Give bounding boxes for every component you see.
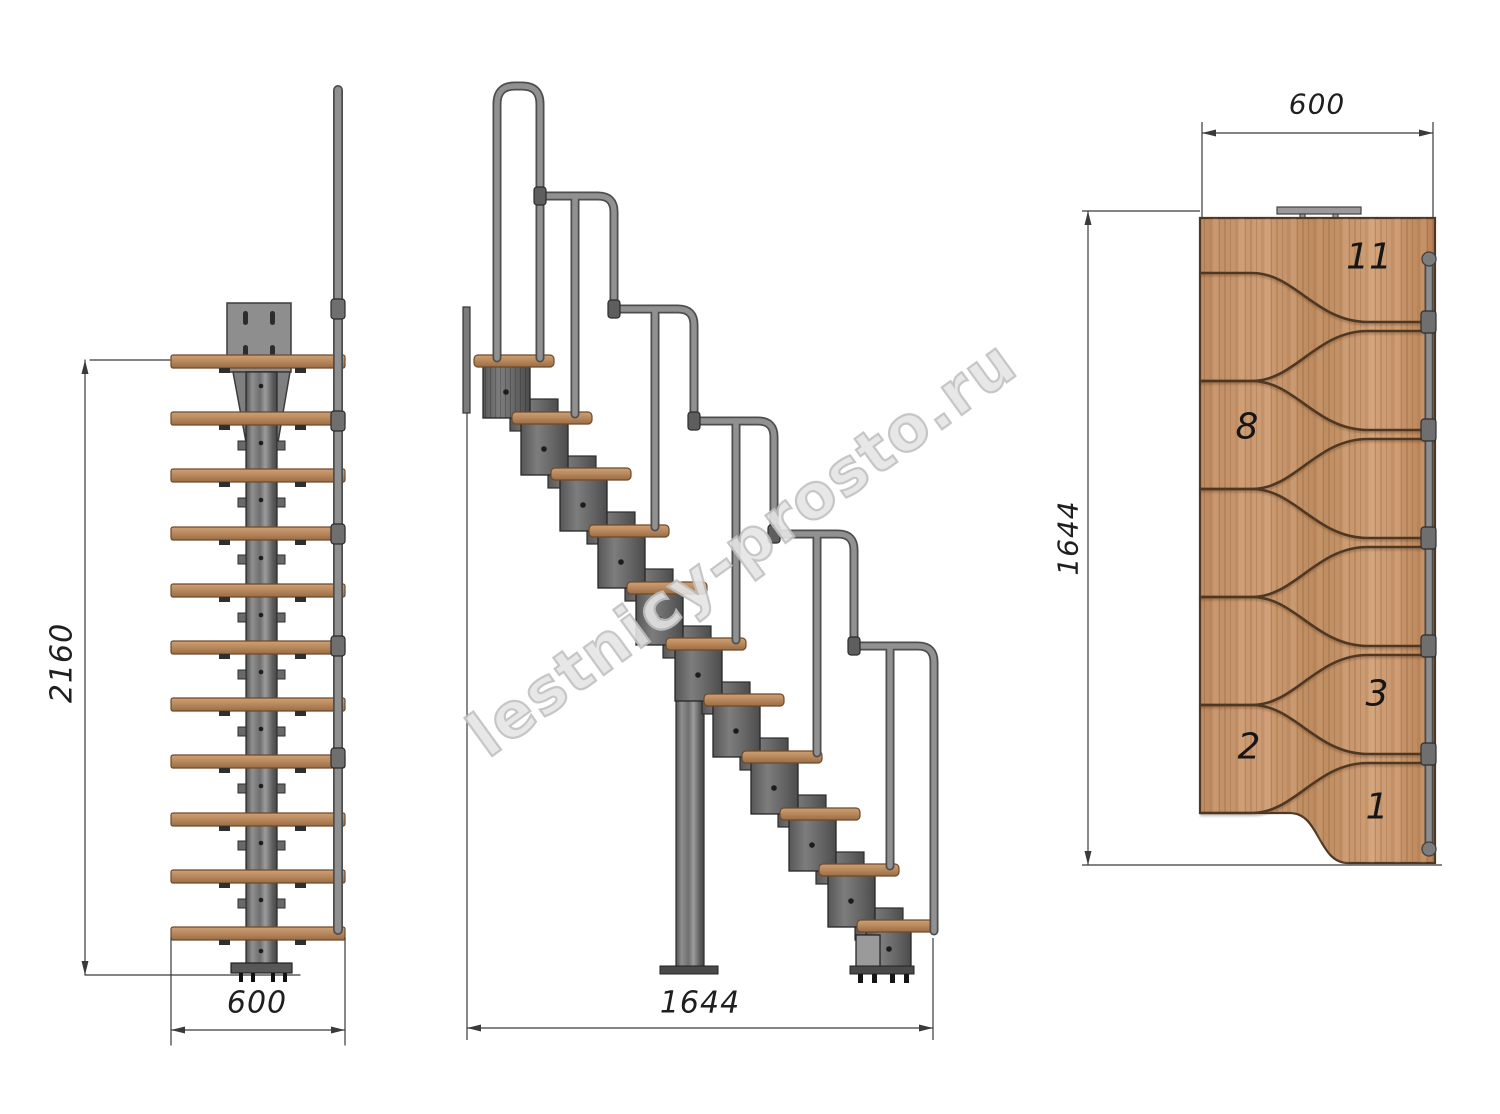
tread [704, 694, 784, 706]
step-number-8: 8 [1236, 407, 1259, 448]
base-plate-side [850, 966, 914, 983]
tread [171, 584, 345, 597]
dim-label-side-length: 1644 [660, 986, 740, 1021]
plan-wood [1200, 218, 1435, 863]
step-number-3: 3 [1366, 674, 1389, 715]
dim-label-front-width: 600 [227, 986, 287, 1021]
handrail-end-ball [1422, 252, 1436, 266]
plate-slot [243, 311, 248, 325]
tread [512, 412, 592, 424]
tread [742, 751, 822, 763]
tread [551, 468, 631, 480]
handrail-post-front [331, 90, 345, 930]
handrail-end-ball [1422, 842, 1436, 856]
tread [171, 355, 345, 368]
stair-technical-drawing: 2160 600 1644 600 1644 11 8 3 2 1 lestni… [0, 0, 1500, 1114]
step-number-1: 1 [1366, 787, 1389, 828]
wall-plate-side [463, 307, 470, 413]
tread [171, 927, 345, 940]
step-number-11: 11 [1346, 237, 1392, 278]
tread [780, 808, 860, 820]
tread [857, 920, 937, 932]
dim-label-plan-length: 1644 [1052, 500, 1085, 575]
dim-label-plan-width: 600 [1289, 88, 1345, 121]
tread [171, 412, 345, 425]
tread [171, 641, 345, 654]
tread [171, 469, 345, 482]
step-number-2: 2 [1238, 727, 1261, 768]
column-base-front [231, 963, 292, 982]
tread [171, 755, 345, 768]
plate-slot [270, 311, 275, 325]
support-column-mid [660, 696, 718, 974]
front-view [82, 90, 346, 1045]
dimension-plan-width [1202, 122, 1433, 218]
tread [171, 698, 345, 711]
tread [171, 870, 345, 883]
plan-view [1082, 122, 1442, 865]
dim-label-front-height: 2160 [45, 623, 80, 703]
tread [171, 813, 345, 826]
tread [171, 527, 345, 540]
